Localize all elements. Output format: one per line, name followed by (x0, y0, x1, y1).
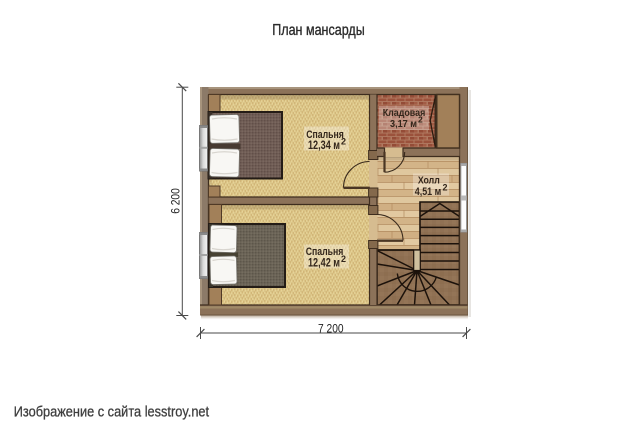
svg-text:6 200: 6 200 (169, 188, 183, 214)
svg-text:План мансарды: План мансарды (272, 22, 365, 39)
svg-text:12,42 м: 12,42 м (308, 258, 340, 270)
svg-text:Спальня: Спальня (306, 129, 344, 141)
svg-text:2: 2 (341, 137, 346, 147)
svg-text:4,51 м: 4,51 м (415, 186, 442, 198)
svg-text:Холл: Холл (418, 175, 440, 187)
svg-text:12,34 м: 12,34 м (308, 140, 340, 152)
svg-text:2: 2 (341, 254, 346, 264)
svg-text:Изображение с сайта lesstroy.n: Изображение с сайта lesstroy.net (14, 404, 210, 421)
svg-text:Спальня: Спальня (306, 246, 344, 258)
svg-text:2: 2 (443, 182, 448, 192)
svg-text:2: 2 (418, 115, 423, 125)
svg-text:7 200: 7 200 (318, 321, 344, 335)
svg-text:3,17 м: 3,17 м (390, 118, 417, 130)
